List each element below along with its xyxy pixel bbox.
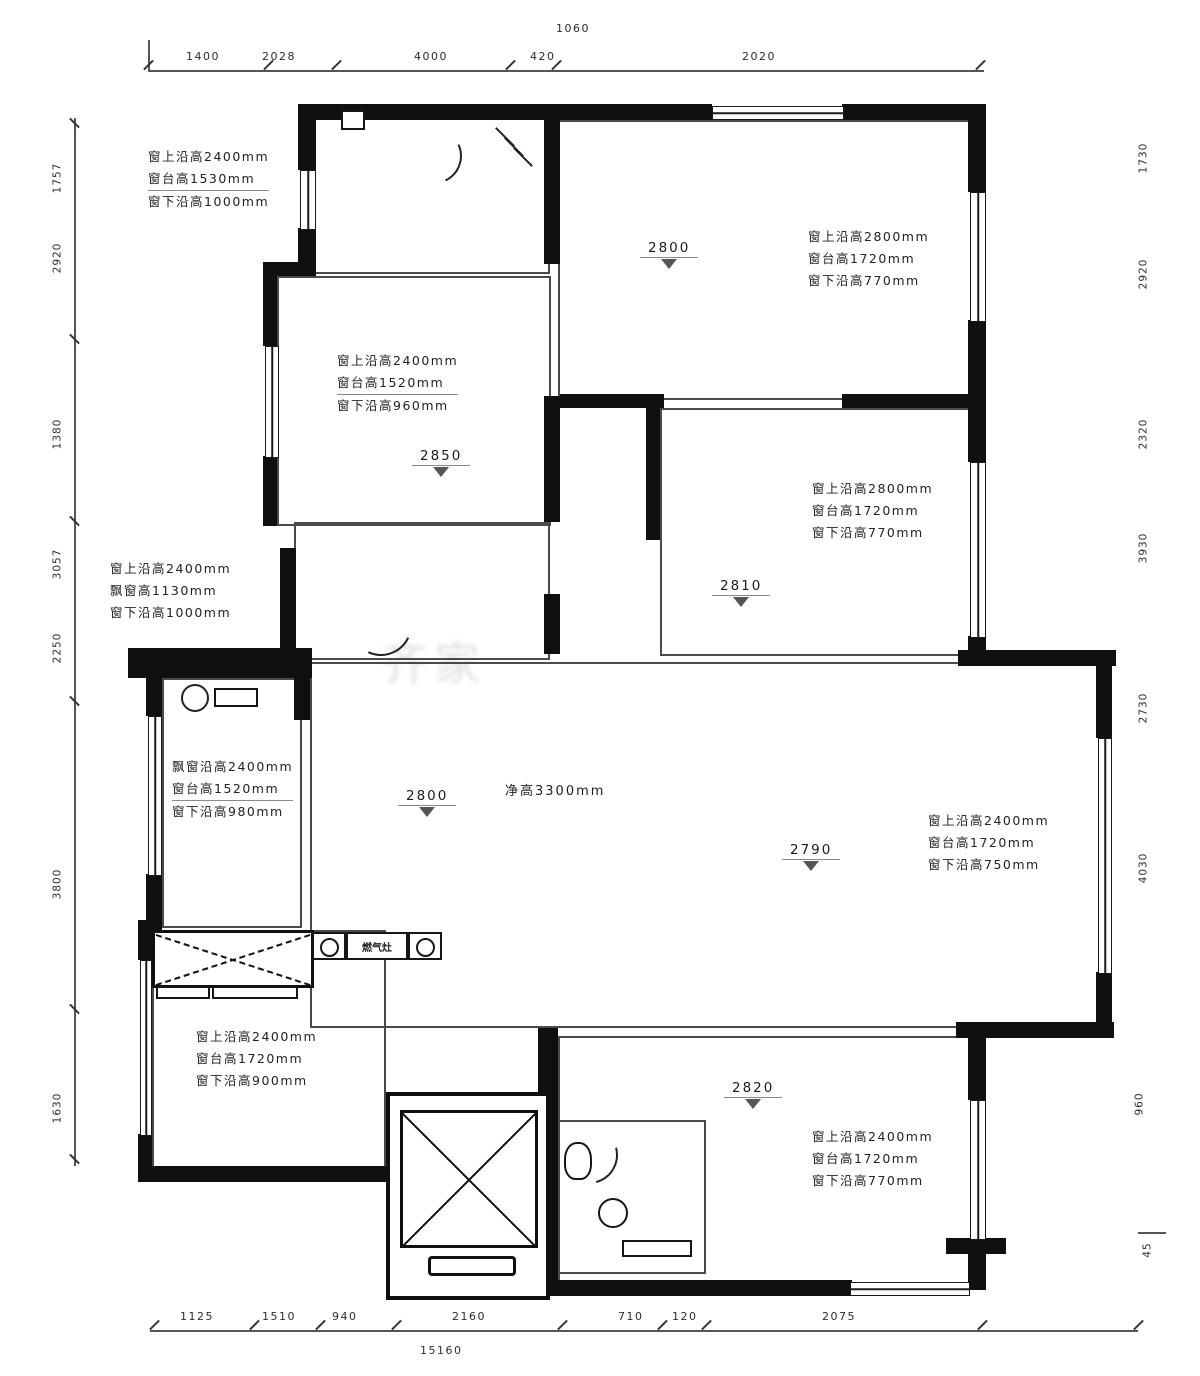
annotation-line: 窗台高1720mm xyxy=(196,1048,317,1070)
wall-segment xyxy=(280,548,296,652)
room-hall-outline xyxy=(294,522,550,660)
dim-label: 3057 xyxy=(51,549,63,580)
window-annotation: 窗上沿高2400mm 飘窗高1130mm 窗下沿高1000mm xyxy=(110,558,231,624)
room-dim-value: 2820 xyxy=(724,1080,782,1098)
wall-segment xyxy=(146,664,162,716)
window xyxy=(1098,738,1112,974)
dim-label: 960 xyxy=(1134,1092,1146,1115)
wall-segment xyxy=(538,1280,852,1296)
wall-segment xyxy=(263,276,277,346)
basin-icon xyxy=(598,1198,628,1228)
dim-label: 940 xyxy=(332,1310,358,1323)
dim-label: 120 xyxy=(672,1310,698,1323)
dim-label: 2920 xyxy=(51,243,63,274)
dim-arrow-icon xyxy=(803,861,819,879)
room-dim-value: 2810 xyxy=(712,578,770,596)
annotation-line: 窗台高1720mm xyxy=(928,832,1049,854)
window xyxy=(970,192,986,322)
annotation-line: 窗台高1520mm xyxy=(172,778,293,801)
room-dim-value: 2850 xyxy=(412,448,470,466)
stove-label: 燃气灶 xyxy=(346,932,408,960)
annotation-line: 窗台高1720mm xyxy=(812,1148,933,1170)
window xyxy=(970,1100,986,1240)
annotation-line: 窗下沿高980mm xyxy=(172,801,293,823)
dim-label: 2028 xyxy=(262,50,296,63)
wall-segment xyxy=(968,320,986,412)
window xyxy=(300,170,316,230)
vanity-icon xyxy=(622,1240,692,1257)
window xyxy=(265,346,279,458)
annotation-line: 窗上沿高2400mm xyxy=(337,350,458,372)
wall-segment xyxy=(544,118,560,264)
dimension-extension xyxy=(1138,1232,1166,1234)
wall-segment xyxy=(294,664,310,720)
annotation-line: 窗下沿高1000mm xyxy=(148,191,269,213)
annotation-line: 窗上沿高2800mm xyxy=(812,478,933,500)
dim-tick xyxy=(701,1320,712,1331)
wall-segment xyxy=(968,412,986,462)
window-annotation: 窗上沿高2400mm 窗台高1520mm 窗下沿高960mm xyxy=(337,350,458,417)
annotation-line: 窗台高1720mm xyxy=(812,500,933,522)
dim-label: 710 xyxy=(618,1310,644,1323)
dim-tick xyxy=(315,1320,326,1331)
room-dim-value: 2800 xyxy=(640,240,698,258)
wall-segment xyxy=(562,104,712,120)
dim-label: 3800 xyxy=(51,869,63,900)
window-annotation: 窗上沿高2400mm 窗台高1720mm 窗下沿高770mm xyxy=(812,1126,933,1192)
burner-icon xyxy=(320,938,339,957)
annotation-line: 窗下沿高900mm xyxy=(196,1070,317,1092)
dim-label: 4000 xyxy=(414,50,448,63)
window-annotation: 窗上沿高2800mm 窗台高1720mm 窗下沿高770mm xyxy=(808,226,929,292)
window xyxy=(140,960,152,1136)
dim-label: 1400 xyxy=(186,50,220,63)
dim-tick xyxy=(657,1320,668,1331)
dim-tick xyxy=(1133,1320,1144,1331)
window xyxy=(970,462,986,638)
dim-arrow-icon xyxy=(433,467,449,485)
room-dim-topright: 2800 xyxy=(640,240,698,277)
window-annotation: 窗上沿高2800mm 窗台高1720mm 窗下沿高770mm xyxy=(812,478,933,544)
dim-arrow-icon xyxy=(745,1099,761,1117)
annotation-line: 窗下沿高1000mm xyxy=(110,602,231,624)
wall-segment xyxy=(263,456,277,526)
annotation-line: 窗台高1720mm xyxy=(808,248,929,270)
annotation-line: 窗上沿高2400mm xyxy=(110,558,231,580)
dim-label: 2020 xyxy=(742,50,776,63)
dim-label: 1510 xyxy=(262,1310,296,1323)
wall-segment xyxy=(138,920,152,960)
room-dim-bedroom-left: 2850 xyxy=(412,448,470,485)
sink-icon xyxy=(181,684,209,712)
annotation-line: 窗上沿高2400mm xyxy=(928,810,1049,832)
wall-segment xyxy=(544,396,560,522)
annotation-line: 窗上沿高2400mm xyxy=(196,1026,317,1048)
dim-arrow-icon xyxy=(661,259,677,277)
dim-arrow-icon xyxy=(419,807,435,825)
counter-drawer xyxy=(156,986,210,999)
dim-label: 2920 xyxy=(1137,259,1149,290)
dim-label: 1380 xyxy=(51,419,63,450)
annotation-line: 窗下沿高750mm xyxy=(928,854,1049,876)
dim-tick xyxy=(975,60,986,71)
cabinet-icon xyxy=(341,110,365,130)
drainboard-icon xyxy=(214,688,258,707)
wall-segment xyxy=(968,104,986,192)
window-annotation: 窗上沿高2400mm 窗台高1720mm 窗下沿高900mm xyxy=(196,1026,317,1092)
living-height-label: 净高3300mm xyxy=(505,780,605,799)
dim-arrow-icon xyxy=(733,597,749,615)
annotation-line: 飘窗沿高2400mm xyxy=(172,756,293,778)
annotation-line: 飘窗高1130mm xyxy=(110,580,231,602)
dim-tick xyxy=(977,1320,988,1331)
counter-unit xyxy=(152,930,314,988)
window-annotation: 窗上沿高2400mm 窗台高1720mm 窗下沿高750mm xyxy=(928,810,1049,876)
annotation-line: 窗下沿高770mm xyxy=(808,270,929,292)
annotation-line: 窗台高1520mm xyxy=(337,372,458,395)
dim-tick xyxy=(557,1320,568,1331)
dim-label: 45 xyxy=(1142,1242,1154,1257)
dim-tick xyxy=(391,1320,402,1331)
burner-icon xyxy=(416,938,435,957)
annotation-line: 窗上沿高2800mm xyxy=(808,226,929,248)
wall-segment xyxy=(298,104,562,120)
dim-label: 1757 xyxy=(51,163,63,194)
wall-segment xyxy=(1096,664,1112,738)
annotation-line: 窗上沿高2400mm xyxy=(812,1126,933,1148)
wall-segment xyxy=(298,118,316,170)
wall-segment xyxy=(538,1028,558,1094)
wall-segment xyxy=(646,408,660,540)
dim-label: 3930 xyxy=(1137,533,1149,564)
window-annotation: 飘窗沿高2400mm 窗台高1520mm 窗下沿高980mm xyxy=(172,756,293,823)
dim-tick xyxy=(149,1320,160,1331)
dim-label: 1730 xyxy=(1137,143,1149,174)
wall-segment xyxy=(138,1166,386,1182)
dim-label: 2250 xyxy=(51,633,63,664)
dim-tick xyxy=(505,60,516,71)
annotation-line: 窗台高1530mm xyxy=(148,168,269,191)
dim-label: 420 xyxy=(530,50,556,63)
toilet-icon xyxy=(564,1142,592,1180)
room-dim-bottomright: 2820 xyxy=(724,1080,782,1117)
dim-label: 2320 xyxy=(1137,419,1149,450)
annotation-line: 窗下沿高770mm xyxy=(812,1170,933,1192)
dim-label: 2730 xyxy=(1137,693,1149,724)
wall-segment xyxy=(560,394,664,408)
window xyxy=(850,1282,970,1296)
dim-label: 1125 xyxy=(180,1310,214,1323)
dim-tick xyxy=(331,60,342,71)
dimension-line-bottom xyxy=(150,1330,1138,1332)
window xyxy=(712,106,844,120)
elevator-cab xyxy=(400,1110,538,1248)
dim-label: 4030 xyxy=(1137,853,1149,884)
dim-label-total: 15160 xyxy=(420,1344,463,1357)
stove-burner-left xyxy=(312,932,346,960)
wall-segment xyxy=(263,262,315,276)
floor-plan-canvas: 齐家 xyxy=(0,0,1200,1376)
stove-burner-right xyxy=(408,932,442,960)
room-dim-value: 2790 xyxy=(782,842,840,860)
room-dim-value: 2800 xyxy=(398,788,456,806)
wall-segment xyxy=(842,394,986,408)
room-dim-right: 2810 xyxy=(712,578,770,615)
window-annotation: 窗上沿高2400mm 窗台高1530mm 窗下沿高1000mm xyxy=(148,146,269,213)
stove-label-text: 燃气灶 xyxy=(362,939,392,954)
wall-segment xyxy=(968,1036,986,1100)
dimension-line-top xyxy=(148,70,984,72)
annotation-line: 窗上沿高2400mm xyxy=(148,146,269,168)
dim-tick xyxy=(249,1320,260,1331)
window xyxy=(148,716,162,876)
room-dim-living: 2800 xyxy=(398,788,456,825)
wall-segment xyxy=(946,1238,1006,1254)
wall-segment xyxy=(842,104,986,120)
elevator-door xyxy=(428,1256,516,1276)
annotation-line: 窗下沿高960mm xyxy=(337,395,458,417)
dim-label: 1060 xyxy=(556,22,590,35)
dim-label: 2075 xyxy=(822,1310,856,1323)
room-dim-living-right: 2790 xyxy=(782,842,840,879)
dim-label: 1630 xyxy=(51,1093,63,1124)
counter-drawer xyxy=(212,986,298,999)
wall-segment xyxy=(958,650,1116,666)
dim-label: 2160 xyxy=(452,1310,486,1323)
wall-segment xyxy=(544,594,560,654)
annotation-line: 窗下沿高770mm xyxy=(812,522,933,544)
